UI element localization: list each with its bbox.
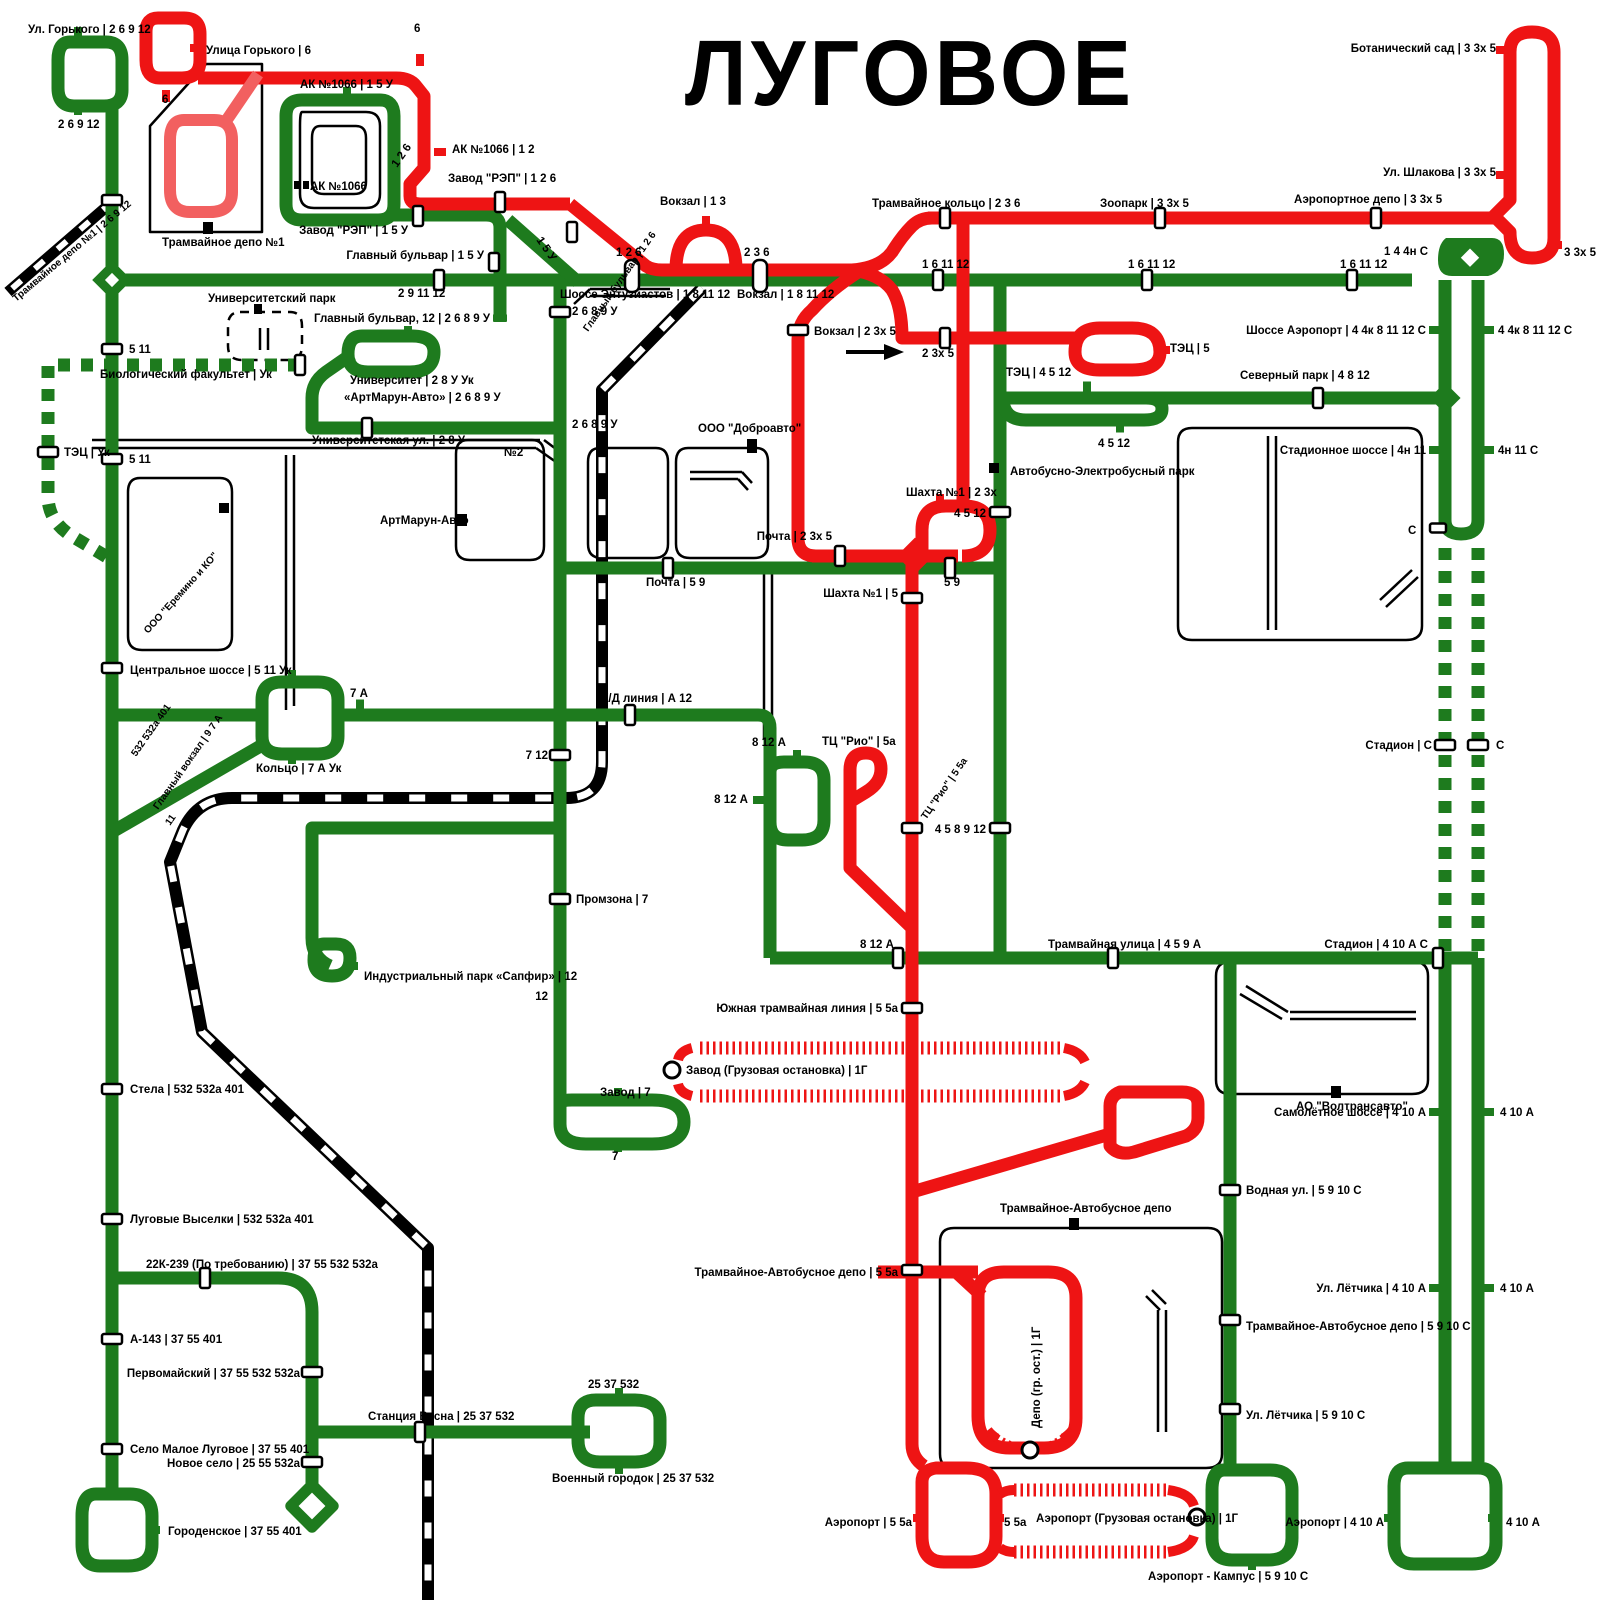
depot-light-loops	[170, 74, 258, 212]
label-ul-gorkogo: Ул. Горького | 2 6 9 12	[28, 24, 151, 36]
univ-park-trees	[260, 328, 268, 350]
label-vokzal-23x5: Вокзал | 2 3х 5	[814, 326, 897, 338]
station-stop	[550, 750, 570, 760]
station-stop	[102, 663, 122, 673]
station-stop	[434, 270, 444, 290]
station-stop	[567, 222, 577, 242]
label-tec-5: ТЭЦ | 5	[1170, 343, 1210, 355]
ak-link	[392, 215, 500, 322]
depot-marker	[1331, 1086, 1341, 1098]
label-tc-rio-5a: ТЦ "Рио" | 5а	[822, 736, 896, 748]
station-stop	[489, 253, 499, 271]
label-tec-uk: ТЭЦ | Ук	[64, 447, 110, 459]
station-stop	[788, 325, 808, 335]
station-stop	[945, 558, 955, 578]
label-vokzal-181112: Вокзал | 1 8 11 12	[737, 289, 834, 301]
route-tick	[1480, 1284, 1494, 1292]
route-tick	[1488, 1514, 1500, 1522]
route-tick	[913, 1514, 925, 1522]
station-stop	[38, 447, 58, 457]
station-stop	[902, 1265, 922, 1275]
label-num-410a-c: 4 10 А	[1506, 1517, 1540, 1529]
station-stop	[415, 1422, 425, 1442]
route-tick	[793, 750, 801, 762]
label-num-29-11-12: 2 9 11 12	[398, 288, 445, 300]
uk-dotted	[48, 365, 300, 560]
terminal-diamond-312	[291, 1485, 333, 1527]
label-univ-park: Университетский парк	[208, 293, 336, 305]
label-a143: А-143 | 37 55 401	[130, 1334, 223, 1346]
label-botsad: Ботанический сад | 3 3х 5	[1351, 43, 1497, 55]
label-pervomaisky: Первомайский | 37 55 532 532а	[127, 1368, 301, 1380]
route-tick	[1429, 1284, 1443, 1292]
label-shahta-23x: Шахта №1 | 2 3х	[906, 487, 997, 499]
station-stop	[753, 260, 767, 292]
label-lugovye: Луговые Выселки | 532 532а 401	[130, 1214, 314, 1226]
station-stop	[1220, 1315, 1240, 1325]
label-selo-maloe: Село Малое Луговое | 37 55 401	[130, 1444, 310, 1456]
label-aeroportnoe-depo: Аэропортное депо | 3 3х 5	[1294, 194, 1443, 206]
label-tad-55a: Трамвайное-Автобусное депо | 5 5а	[695, 1267, 899, 1279]
label-num-2689u-b: 2 6 8 9 У	[572, 419, 618, 431]
transit-map-canvas: Ул. Горького | 2 6 9 122 6 9 12Улица Гор…	[0, 0, 1600, 1600]
flag-loop	[1110, 1092, 1198, 1153]
label-letchika-5910: Ул. Лётчика | 5 9 10 С	[1246, 1410, 1365, 1422]
route-tick	[1480, 446, 1494, 454]
route-tick	[1480, 326, 1494, 334]
station-stop	[102, 1444, 122, 1454]
label-num-511-b: 5 11	[129, 454, 151, 466]
depot-marker	[747, 439, 757, 453]
diamond-corridor	[1429, 382, 1460, 413]
label-ulitsa-gorkogo: Улица Горького | 6	[206, 45, 311, 57]
label-num-410a-a: 4 10 А	[1500, 1107, 1534, 1119]
label-artmarun-route: «АртМарун-Авто» | 2 6 8 9 У	[344, 392, 501, 404]
label-stela: Стела | 532 532а 401	[130, 1084, 245, 1096]
label-c-top: С	[1408, 525, 1416, 537]
route-tick	[1429, 1108, 1443, 1116]
station-stop	[990, 507, 1010, 517]
label-gorodenskoe: Городенское | 37 55 401	[168, 1526, 302, 1538]
label-num-410a-b: 4 10 А	[1500, 1283, 1534, 1295]
station-stop	[302, 1367, 322, 1377]
route-tick	[1429, 446, 1443, 454]
transit-map: Ул. Горького | 2 6 9 122 6 9 12Улица Гор…	[0, 0, 1600, 1600]
label-num-6: 6	[162, 94, 168, 106]
label-num-7: 7	[612, 1151, 618, 1163]
label-samolet: Самолётное шоссе | 4 10 А	[1274, 1107, 1426, 1119]
label-tram-ulica: Трамвайная улица | 4 5 9 А	[1048, 939, 1201, 951]
label-glav-bulvar-12: Главный бульвар, 12 | 2 6 8 9 У	[314, 313, 491, 325]
label-stadion-c: Стадион | С	[1365, 740, 1432, 752]
tc-rio-stem	[850, 796, 910, 926]
airport-green-loop	[1394, 1468, 1496, 1564]
station-stop	[625, 705, 635, 725]
label-num-4n11c: 4н 11 С	[1498, 445, 1538, 457]
station-stop	[1313, 388, 1323, 408]
label-pochta-23x5: Почта | 2 3х 5	[757, 531, 833, 543]
label-num-33x5: 3 3х 5	[1564, 247, 1597, 259]
label-zavod-rep-red: Завод "РЭП" | 1 2 6	[448, 173, 556, 185]
label-depo-gruz: Депо (гр. ост.) | 1Г	[1031, 1326, 1043, 1428]
map-title: ЛУГОВОЕ	[685, 22, 1135, 125]
label-promzona: Промзона | 7	[576, 894, 648, 906]
route-tick	[1496, 46, 1508, 54]
station-stop	[902, 593, 922, 603]
kolco-ring	[262, 682, 338, 754]
label-no2: №2	[504, 447, 523, 459]
label-aeroport-gruz: Аэропорт (Грузовая остановка) | 1Г	[1036, 1513, 1239, 1525]
label-sapfir: Индустриальный парк «Сапфир» | 12	[364, 971, 577, 983]
route-tick	[1496, 171, 1508, 179]
autobus-park-building	[1178, 428, 1422, 640]
route-tick	[1248, 1558, 1256, 1570]
tad-inner-loop	[978, 1272, 1076, 1448]
label-voenny: Военный городок | 25 37 532	[552, 1473, 714, 1485]
label-autobus-park: Автобусно-Электробусный парк	[1010, 466, 1195, 478]
tad-inner	[1146, 1290, 1166, 1432]
label-stadionnoe-shosse: Стадионное шоссе | 4н 11	[1280, 445, 1427, 457]
route-tick	[190, 44, 202, 52]
depot1-inner-loop	[170, 74, 258, 212]
dobroavto-building-2	[676, 448, 768, 558]
route-tick	[1384, 1514, 1396, 1522]
label-c-right: С	[1496, 740, 1504, 752]
station-stop	[1220, 1404, 1240, 1414]
label-tc-rio-55a: ТЦ "Рио" | 5 5а	[919, 756, 970, 822]
route-tick	[1480, 1108, 1494, 1116]
label-stadion-410: Стадион | 4 10 А С	[1324, 939, 1428, 951]
label-shahta-5: Шахта №1 | 5	[823, 588, 898, 600]
label-num-236: 2 3 6	[744, 247, 770, 259]
label-tram-depo1: Трамвайное депо №1	[162, 237, 285, 249]
label-univ-ul: Университетская ул. | 2 8 У	[312, 435, 466, 447]
station-stop	[550, 894, 570, 904]
label-tad-depot: Трамвайное-Автобусное депо	[1000, 1203, 1172, 1215]
label-num-44k: 4 4к 8 11 12 С	[1498, 325, 1572, 337]
station-stop	[1430, 524, 1446, 533]
station-stop	[295, 355, 305, 375]
label-num-812a-c: 8 12 А	[860, 939, 894, 951]
label-letchika-410: Ул. Лётчика | 4 10 А	[1316, 1283, 1426, 1295]
station-stop	[1347, 270, 1357, 290]
label-universitet: Университет | 2 8 У Ук	[350, 375, 474, 387]
label-ak1066-depot: АК №1066	[310, 181, 367, 193]
gorkogo-loop	[58, 42, 122, 106]
route-tick	[753, 796, 765, 804]
label-zavod-rep-green: Завод "РЭП" | 1 5 У	[299, 225, 409, 237]
station-stop	[940, 208, 950, 228]
route-tick	[493, 315, 507, 322]
route-tick	[1116, 420, 1124, 433]
label-n22k: 22К-239 (По требованию) | 37 55 532 532а	[146, 1259, 378, 1271]
route-tick	[416, 54, 424, 66]
airport-depot-fork	[1494, 32, 1554, 258]
station-stop	[550, 307, 570, 317]
label-num-161112-a: 1 6 11 12	[922, 259, 969, 271]
route-tick	[1550, 241, 1562, 249]
flag-connector	[912, 1134, 1110, 1192]
route-tick	[1083, 382, 1091, 395]
gorodenskoe-loop	[82, 1494, 152, 1566]
univ-park-outline	[228, 312, 302, 360]
station-stop	[102, 344, 122, 354]
label-ak1066-green: АК №1066 | 1 5 У	[300, 79, 394, 91]
route-tick	[702, 216, 710, 228]
tec5-loop	[1075, 328, 1160, 370]
station-stop	[1433, 948, 1443, 968]
kolco-upper-link	[852, 218, 932, 270]
depot-marker	[303, 181, 309, 189]
station-stop	[1468, 740, 1488, 750]
station-stop	[1108, 948, 1118, 968]
station-stop	[663, 558, 673, 578]
station-stop	[302, 1457, 322, 1467]
label-num-126: 1 2 6	[616, 247, 642, 259]
label-centr-shosse: Центральное шоссе | 5 11 Ук	[130, 665, 292, 677]
label-num-6-top: 6	[414, 23, 420, 35]
station-stop	[102, 1084, 122, 1094]
label-severny-park: Северный парк | 4 8 12	[1240, 370, 1370, 382]
label-num-23x5: 2 3х 5	[922, 348, 955, 360]
label-ak1066-red: АК №1066 | 1 2	[452, 144, 535, 156]
label-num-12: 12	[535, 991, 548, 1003]
label-num-511-a: 5 11	[129, 344, 151, 356]
label-tram-kolco: Трамвайное кольцо | 2 3 6	[872, 198, 1020, 210]
label-num-812a-b: 8 12 А	[714, 794, 748, 806]
label-num-712: 7 12	[526, 750, 548, 762]
label-zavod-7: Завод | 7	[600, 1087, 651, 1099]
label-yuzhnaya: Южная трамвайная линия | 5 5а	[716, 1003, 898, 1015]
university-loop	[348, 336, 434, 372]
station-stop	[200, 1268, 210, 1288]
route-tick	[404, 326, 412, 338]
route-tick	[434, 148, 446, 156]
label-novoe-selo: Новое село | 25 55 532а	[167, 1458, 301, 1470]
label-shosse-aeroport: Шоссе Аэропорт | 4 4к 8 11 12 С	[1246, 325, 1426, 337]
tad-circle-caps	[988, 1430, 1072, 1438]
station-stop	[413, 206, 423, 226]
label-num-2689u-a: 2 6 8 9 У	[572, 306, 618, 318]
voltransavto-building	[1216, 962, 1428, 1094]
route-tick	[148, 1526, 160, 1534]
voenny-loop	[578, 1400, 660, 1462]
label-num-144nc: 1 4 4н С	[1384, 246, 1428, 258]
label-num-11-diag: 11	[163, 812, 178, 827]
label-glav-bulvar-green: Главный бульвар | 1 5 У	[346, 250, 484, 262]
label-num-812a-a: 8 12 А	[752, 737, 786, 749]
label-num-55a: 5 5а	[1004, 1517, 1027, 1529]
tc-rio-loop	[850, 753, 881, 800]
label-vodnaya: Водная ул. | 5 9 10 С	[1246, 1185, 1362, 1197]
label-tad-5910: Трамвайное-Автобусное депо | 5 9 10 С	[1246, 1321, 1471, 1333]
station-stop	[102, 1214, 122, 1224]
station-stop	[902, 1003, 922, 1013]
vokzal-23x5-line	[798, 272, 858, 556]
airport-red-loop	[922, 1468, 996, 1562]
depot-marker	[203, 222, 213, 234]
station-stop	[902, 823, 922, 833]
label-num-458912: 4 5 8 9 12	[935, 824, 986, 836]
label-num-2537532: 25 37 532	[588, 1379, 639, 1391]
station-stop	[893, 948, 903, 968]
label-num-161112-c: 1 6 11 12	[1340, 259, 1387, 271]
label-aeroport-55a: Аэропорт | 5 5а	[825, 1517, 913, 1529]
rail-sidings	[92, 289, 884, 756]
route-tick	[346, 962, 358, 970]
route-tick	[992, 1514, 1004, 1522]
loop-812a	[770, 762, 824, 840]
station-stop	[835, 546, 845, 566]
freight-stop-circle	[664, 1062, 680, 1078]
depot-marker	[254, 304, 262, 314]
route-tick	[1158, 346, 1170, 354]
label-num-161112-b: 1 6 11 12	[1128, 259, 1175, 271]
label-num-7a: 7 А	[350, 688, 368, 700]
label-num-59: 5 9	[944, 577, 960, 589]
label-artmarun-depot: АртМарун-Авто	[380, 515, 469, 527]
station-stop	[990, 823, 1010, 833]
label-zoopark: Зоопарк | 3 3х 5	[1100, 198, 1190, 210]
station-stop	[102, 1334, 122, 1344]
label-aeroport-410: Аэропорт | 4 10 А	[1285, 1517, 1384, 1529]
autobus-park-inner	[1268, 436, 1418, 630]
rail-arrow-head	[884, 344, 904, 360]
label-shosse-ent: Шоссе Энтузиастов | 1 8 11 12	[560, 289, 730, 301]
label-zavod-gruz: Завод (Грузовая остановка) | 1Г	[686, 1065, 868, 1077]
station-stop	[940, 328, 950, 348]
eremino-building	[128, 478, 232, 650]
station-stop	[1371, 208, 1381, 228]
label-zhd-linia: Ж/Д линия | А 12	[597, 693, 692, 705]
station-stop	[102, 195, 122, 205]
station-stop	[1155, 208, 1165, 228]
route-tick	[356, 700, 364, 713]
depot-marker	[989, 463, 999, 473]
label-num-26912: 2 6 9 12	[58, 119, 100, 131]
label-kampus: Аэропорт - Кампус | 5 9 10 С	[1148, 1571, 1308, 1583]
label-tec-4512: ТЭЦ | 4 5 12	[1006, 367, 1071, 379]
station-stop	[1142, 270, 1152, 290]
label-num-4512-b: 4 5 12	[1098, 438, 1130, 450]
artmarun-building	[456, 440, 544, 560]
route-tick	[74, 101, 82, 115]
route-tick	[1429, 326, 1443, 334]
station-stop	[933, 270, 943, 290]
station-stop	[1220, 1185, 1240, 1195]
depot-marker	[294, 181, 300, 189]
freight-stop-circle	[1022, 1442, 1038, 1458]
label-shlakova: Ул. Шлакова | 3 3х 5	[1383, 167, 1497, 179]
label-num-4512-c: 4 5 12	[954, 508, 986, 520]
label-vokzal-13: Вокзал | 1 3	[660, 196, 726, 208]
label-pochta-59: Почта | 5 9	[646, 577, 705, 589]
station-stop	[495, 192, 505, 212]
label-dobroavto: ООО "Доброавто"	[698, 423, 801, 435]
depot-marker	[219, 503, 229, 513]
zavod-loop	[560, 1100, 684, 1144]
label-eremino: ООО "Еремино и КО"	[142, 550, 221, 636]
label-biofak: Биологический факультет | Ук	[100, 369, 272, 381]
label-stancia-vesna: Станция Весна | 25 37 532	[368, 1411, 514, 1423]
voltransavto-inner	[1240, 986, 1416, 1019]
label-kolco: Кольцо | 7 А Ук	[256, 763, 342, 775]
depot-marker	[1069, 1218, 1079, 1230]
dobroavto-siding	[690, 472, 752, 490]
station-stop	[1435, 740, 1455, 750]
